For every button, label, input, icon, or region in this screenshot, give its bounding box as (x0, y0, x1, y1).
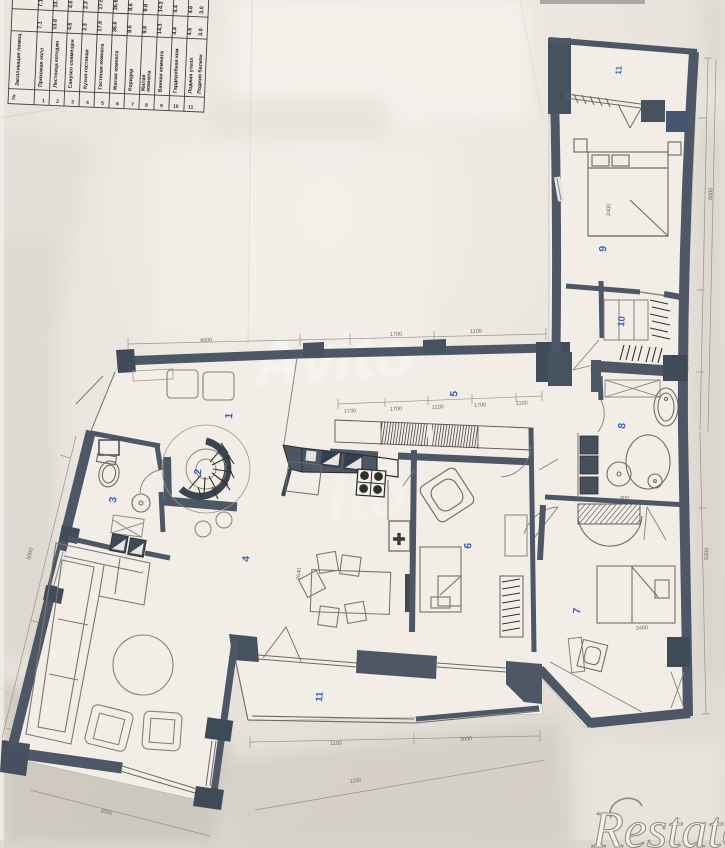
svg-text:7.1: 7.1 (37, 21, 43, 29)
svg-text:3.0: 3.0 (198, 28, 204, 36)
svg-text:9.8: 9.8 (142, 26, 148, 34)
svg-text:2.3: 2.3 (83, 1, 89, 9)
svg-text:14.3: 14.3 (157, 23, 163, 34)
svg-text:Restate: Restate (591, 802, 725, 848)
svg-text:2: 2 (192, 468, 204, 475)
svg-text:1: 1 (42, 98, 45, 104)
svg-text:4.6: 4.6 (68, 0, 74, 8)
svg-text:13.6: 13.6 (53, 0, 59, 8)
svg-text:2640: 2640 (296, 567, 303, 580)
svg-text:4.6: 4.6 (67, 22, 73, 30)
svg-text:9: 9 (160, 103, 163, 109)
svg-text:3000: 3000 (460, 736, 473, 743)
svg-text:36.6: 36.6 (112, 21, 118, 32)
svg-text:комната: комната (146, 71, 153, 92)
svg-text:10: 10 (616, 316, 628, 327)
svg-text:7: 7 (131, 102, 134, 108)
svg-text:11: 11 (188, 104, 194, 110)
svg-text:3: 3 (107, 496, 119, 503)
svg-text:1: 1 (223, 412, 235, 419)
svg-text:4.6: 4.6 (187, 28, 193, 36)
svg-text:900: 900 (620, 496, 629, 502)
svg-text:6000: 6000 (708, 188, 714, 200)
svg-text:2400: 2400 (636, 625, 649, 632)
svg-text:4: 4 (86, 100, 89, 106)
svg-text:5: 5 (101, 101, 104, 107)
svg-text:2.3: 2.3 (82, 23, 88, 31)
svg-text:17.6: 17.6 (97, 21, 103, 32)
svg-text:17.6: 17.6 (98, 0, 104, 10)
svg-text:4.4: 4.4 (172, 26, 178, 35)
svg-text:7: 7 (571, 607, 583, 614)
svg-text:11: 11 (314, 691, 326, 703)
svg-text:6: 6 (116, 101, 119, 107)
svg-text:9.8: 9.8 (143, 4, 149, 12)
svg-text:1100: 1100 (432, 404, 444, 411)
svg-text:2: 2 (56, 99, 59, 105)
svg-text:1700: 1700 (390, 332, 402, 338)
svg-text:10: 10 (173, 104, 179, 110)
svg-text:6: 6 (462, 542, 474, 549)
svg-text:9: 9 (597, 245, 609, 252)
svg-text:4000: 4000 (200, 338, 212, 344)
svg-text:8.6: 8.6 (127, 25, 133, 33)
svg-text:5: 5 (448, 390, 460, 397)
svg-text:4.6: 4.6 (188, 6, 194, 14)
svg-text:36.6: 36.6 (113, 0, 119, 10)
svg-text:1100: 1100 (516, 400, 528, 407)
svg-text:1730: 1730 (344, 408, 357, 415)
svg-text:3.0: 3.0 (199, 6, 205, 14)
svg-text:3: 3 (71, 99, 74, 105)
svg-text:8: 8 (145, 103, 148, 109)
svg-text:1700: 1700 (390, 406, 403, 413)
svg-text:7.1: 7.1 (38, 0, 44, 7)
svg-text:8.6: 8.6 (128, 3, 134, 11)
svg-text:4.4: 4.4 (173, 4, 179, 13)
svg-text:2400: 2400 (606, 204, 612, 216)
svg-text:11: 11 (613, 65, 624, 75)
svg-text:1700: 1700 (474, 402, 487, 409)
svg-text:5200: 5200 (704, 548, 710, 560)
svg-text:13.6: 13.6 (52, 19, 58, 30)
svg-text:Коридор: Коридор (128, 68, 135, 91)
svg-text:1100: 1100 (330, 741, 342, 747)
svg-text:4: 4 (240, 555, 252, 562)
svg-text:14.3: 14.3 (158, 1, 164, 12)
svg-text:1100: 1100 (470, 329, 482, 335)
svg-text:№: № (11, 94, 17, 100)
svg-text:8: 8 (616, 422, 628, 429)
